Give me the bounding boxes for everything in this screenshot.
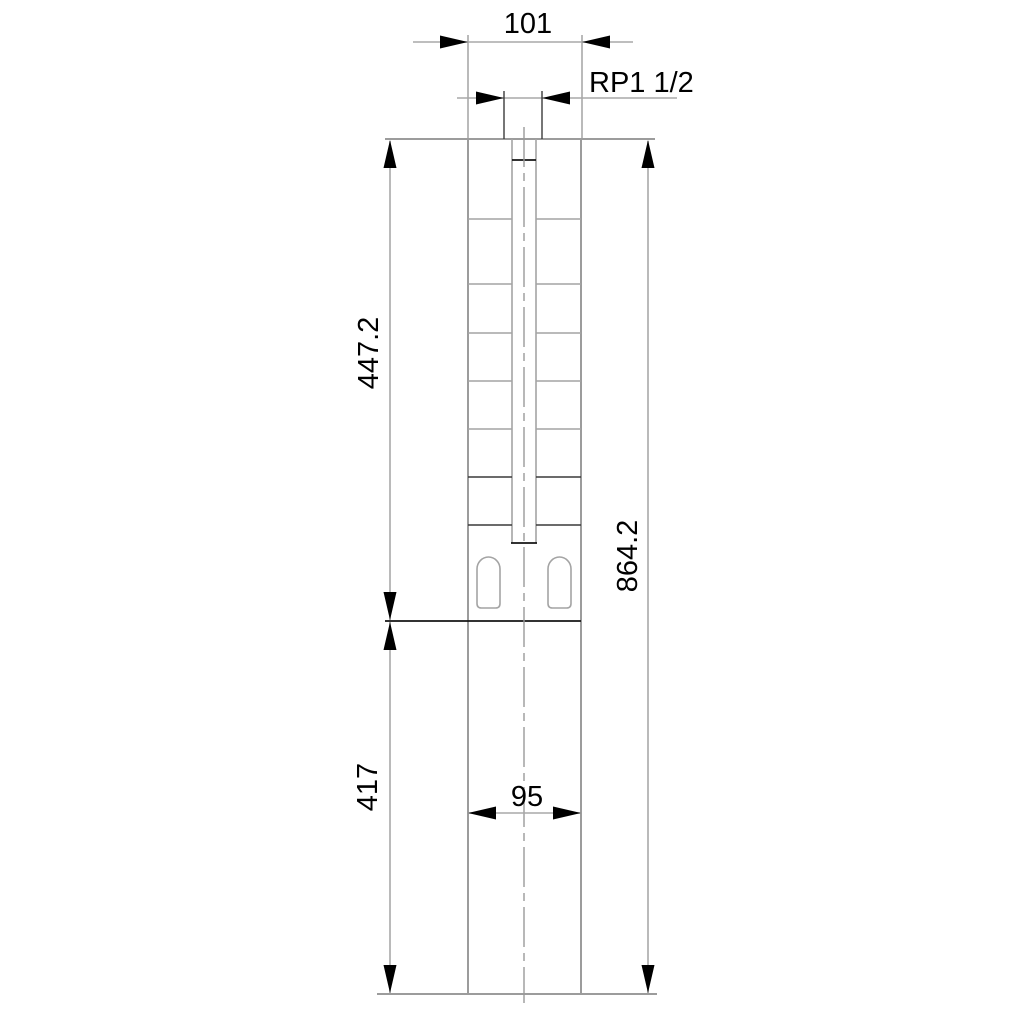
dim-arrow-left-icon bbox=[468, 807, 496, 820]
dim-arrow-right-icon bbox=[553, 807, 581, 820]
dim-arrow-down-icon bbox=[384, 965, 397, 993]
dim-label-motor-length: 417 bbox=[352, 763, 384, 811]
dim-arrow-up-icon bbox=[642, 140, 655, 168]
inlet-slot-right bbox=[548, 557, 571, 608]
dim-label-motor-width: 95 bbox=[511, 781, 543, 813]
dimension-thread: RP1 1/2 bbox=[457, 67, 694, 139]
dim-label-top-width: 101 bbox=[504, 8, 552, 40]
dimension-total-length: 864.2 bbox=[612, 140, 655, 993]
dim-arrow-left-icon bbox=[582, 36, 610, 49]
pump-dimension-drawing: 101 RP1 1/2 447.2 417 864.2 95 bbox=[0, 0, 1024, 1024]
dimension-motor-width: 95 bbox=[468, 781, 581, 820]
dim-arrow-down-icon bbox=[384, 592, 397, 620]
dimension-motor-length: 417 bbox=[352, 622, 397, 993]
dim-label-pump-length: 447.2 bbox=[353, 317, 385, 390]
technical-drawing-page: 101 RP1 1/2 447.2 417 864.2 95 bbox=[0, 0, 1024, 1024]
dim-label-total-length: 864.2 bbox=[612, 520, 644, 593]
dim-arrow-down-icon bbox=[642, 965, 655, 993]
dim-label-thread: RP1 1/2 bbox=[589, 67, 694, 99]
dim-arrow-up-icon bbox=[384, 140, 397, 168]
dim-arrow-left-icon bbox=[542, 92, 570, 105]
dim-arrow-right-icon bbox=[476, 92, 504, 105]
dimension-pump-length: 447.2 bbox=[353, 140, 397, 620]
dim-arrow-right-icon bbox=[440, 36, 468, 49]
inlet-slot-left bbox=[477, 557, 500, 608]
dim-arrow-up-icon bbox=[384, 622, 397, 650]
